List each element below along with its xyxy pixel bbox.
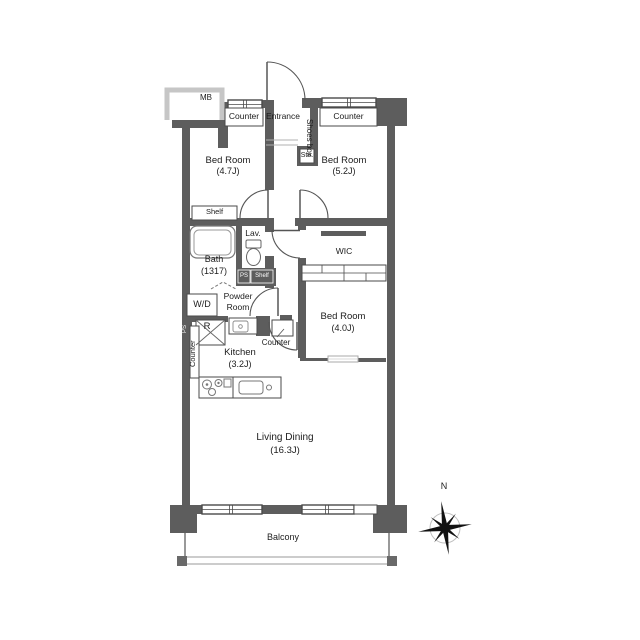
floor-plan: MB Counter Entrance Shoes box Sto. Count… (0, 0, 640, 640)
toilet (246, 240, 261, 266)
bedroom2-door-arc (300, 190, 328, 218)
entrance-door-arc (267, 62, 305, 100)
compass-north-label: N (436, 482, 452, 492)
wall-segment (357, 358, 386, 362)
bath-name: Bath (195, 255, 233, 265)
window-bottom-right (354, 505, 377, 514)
sink-box (233, 377, 281, 398)
bedroom1-size: (4.7J) (198, 167, 258, 177)
wic-hanger-bar (321, 231, 366, 236)
kitchen-name: Kitchen (213, 348, 267, 358)
counter-top-left-label: Counter (225, 112, 263, 121)
bedroom1-door-arc (240, 190, 268, 218)
window-bottom-left (202, 505, 262, 514)
powder-room-label-1: Powder (217, 292, 259, 301)
balcony-foot-right (387, 556, 397, 566)
lavatory-door-arc (272, 230, 300, 258)
living-dining-name: Living Dining (243, 433, 327, 444)
pillar-top-right (376, 98, 407, 126)
balcony-support-left (184, 533, 186, 557)
bedroom3-size: (4.0J) (313, 324, 373, 334)
counter-kitchen-wall-label: Counter (189, 331, 200, 377)
counter-top-right-label: Counter (320, 112, 377, 121)
window-bottom-center (302, 505, 354, 514)
shelf-hall-label: Shelf (251, 273, 273, 279)
meter-box (167, 88, 224, 120)
wall-segment (298, 286, 306, 358)
bedroom2-name: Bed Room (314, 156, 374, 166)
wall-segment (197, 505, 202, 514)
wall-right (387, 126, 395, 505)
compass-icon (415, 498, 476, 559)
meter-box-label: MB (192, 94, 220, 103)
lavatory-label: Lav. (240, 229, 266, 238)
bedroom1-name: Bed Room (198, 156, 258, 166)
wall-segment (300, 358, 328, 361)
counter-pass-box (272, 320, 293, 336)
wall-segment (298, 218, 306, 230)
wic-sliding-door (302, 265, 386, 281)
pipe-space-kitchen-label: PS (182, 320, 192, 337)
pipe-space-hall-label: PS (238, 273, 250, 279)
living-dining-size: (16.3J) (250, 446, 320, 456)
window-top-right (322, 98, 376, 107)
counter-kitchen-label: Counter (253, 339, 299, 348)
wall-segment (256, 316, 270, 336)
bath-folding-door (211, 282, 236, 289)
balcony-rail (180, 557, 394, 564)
bedroom2-size: (5.2J) (314, 167, 374, 177)
kitchen-size: (3.2J) (216, 360, 264, 370)
shelf-bedroom-label: Shelf (192, 208, 237, 216)
washer-dryer-label: W/D (187, 300, 217, 310)
bath-size: (1317) (193, 267, 235, 277)
balcony-support-right (388, 533, 390, 557)
bedroom3-name: Bed Room (313, 312, 373, 322)
wall-segment (295, 218, 387, 226)
entrance-label: Entrance (262, 112, 304, 121)
wic-label: WIC (330, 247, 358, 256)
wall-segment (262, 505, 302, 514)
bedroom3-sliding-door (328, 356, 358, 362)
balcony-label: Balcony (257, 533, 309, 543)
pillar-bottom-left (170, 505, 197, 533)
balcony-foot-left (177, 556, 187, 566)
powder-room-label-2: Room (219, 303, 257, 312)
pillar-bottom-right (373, 505, 407, 533)
